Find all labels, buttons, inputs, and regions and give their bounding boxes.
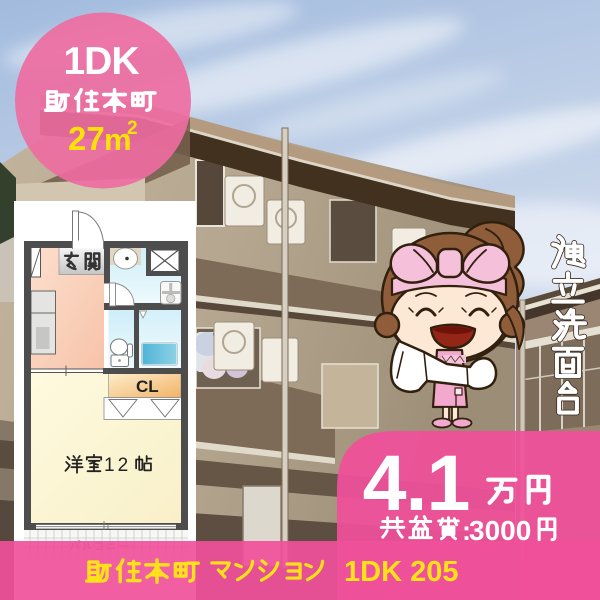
svg-text:12: 12	[104, 455, 131, 476]
svg-text:1DK 205: 1DK 205	[344, 556, 458, 588]
svg-text:27: 27	[68, 120, 105, 157]
svg-text:3000: 3000	[469, 515, 531, 546]
svg-text:2: 2	[127, 118, 138, 139]
svg-text:1DK: 1DK	[63, 40, 139, 83]
svg-text:CL: CL	[136, 377, 159, 396]
svg-text:4.1: 4.1	[363, 438, 470, 527]
